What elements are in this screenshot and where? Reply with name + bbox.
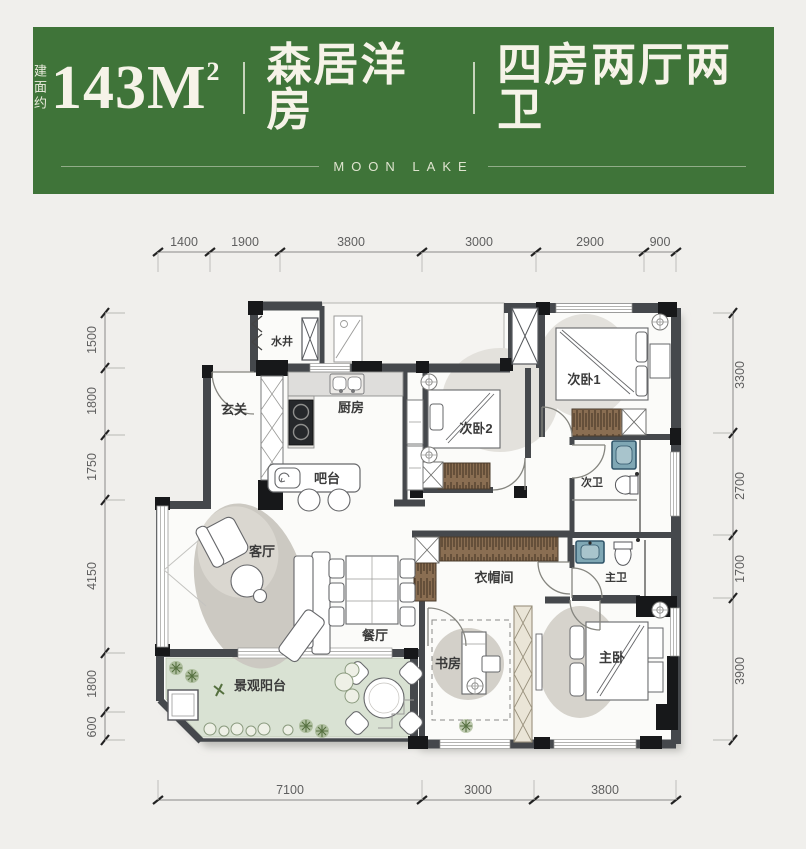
room-label-masterbed: 主卧: [599, 650, 625, 665]
room-label-balcony: 景观阳台: [234, 678, 286, 693]
room-label-foyer: 玄关: [221, 402, 247, 417]
room-label-cloakroom: 衣帽间: [474, 570, 513, 585]
bath2-fixtures: [612, 441, 639, 494]
bath2-window: [671, 452, 680, 516]
dim-top-1: 1900: [231, 235, 259, 249]
dim-right-3: 3900: [733, 657, 747, 685]
dim-top-3: 3000: [465, 235, 493, 249]
dim-left-1: 1800: [85, 387, 99, 415]
room-label-bedroom2: 次卧2: [459, 421, 492, 436]
dim-left-3: 4150: [85, 562, 99, 590]
bedroom1-plant-icon: [652, 314, 668, 330]
room-label-kitchen: 厨房: [338, 400, 364, 415]
room-label-bar: 吧台: [314, 471, 340, 486]
bedroom1-window: [556, 304, 632, 313]
title-divider: [243, 62, 245, 114]
dim-bottom-2: 3800: [591, 783, 619, 797]
masterbed-plant-icon: [652, 602, 668, 618]
dim-top-4: 2900: [576, 235, 604, 249]
brand-line-left: [61, 166, 319, 167]
dim-right-1: 2700: [733, 472, 747, 500]
dim-left-0: 1500: [85, 326, 99, 354]
room-label-dining: 餐厅: [361, 628, 388, 643]
product-name: 森居洋房: [267, 43, 452, 133]
brand-text: MOON LAKE: [333, 159, 473, 174]
dim-left-4: 1800: [85, 670, 99, 698]
room-label-bedroom1: 次卧1: [567, 372, 600, 387]
dim-left-2: 1750: [85, 453, 99, 481]
area-value: 143M2: [51, 57, 221, 119]
study-plant-icon: [467, 678, 483, 694]
bedroom2-plant-icon: [421, 374, 437, 390]
area-superscript: 2: [207, 57, 221, 86]
layout-name: 四房两厅两卫: [497, 43, 774, 133]
brand-line-right: [488, 166, 746, 167]
title-row: 建面约 143M2 森居洋房 四房两厅两卫: [33, 43, 774, 133]
dim-top-0: 1400: [170, 235, 198, 249]
dim-top-5: 900: [650, 235, 671, 249]
floor-plan: 水井 玄关 厨房 次卧2 次卧1 吧台 次卫 客厅 衣帽间 主卫 餐厅 书房 主…: [0, 194, 806, 844]
kitchen-window: [310, 364, 350, 373]
room-label-shaft: 水井: [271, 334, 293, 348]
room-label-living: 客厅: [249, 544, 275, 559]
dim-right-0: 3300: [733, 361, 747, 389]
bar-stool: [328, 489, 350, 511]
bar-stool: [298, 489, 320, 511]
room-label-masterbath: 主卫: [605, 570, 627, 584]
dim-right-2: 1700: [733, 555, 747, 583]
dim-bottom-0: 7100: [276, 783, 304, 797]
study-window: [440, 740, 510, 749]
bedroom2-plant-icon: [421, 447, 437, 463]
room-label-study: 书房: [435, 656, 461, 671]
brand-row: MOON LAKE: [61, 159, 746, 174]
title-divider: [473, 62, 475, 114]
room-label-bath2: 次卫: [581, 475, 603, 489]
area-number: 143M: [51, 54, 207, 122]
dim-bottom-1: 3000: [464, 783, 492, 797]
dim-left-5: 600: [85, 717, 99, 738]
masterbed-window-right: [671, 608, 680, 656]
dim-top-2: 3800: [337, 235, 365, 249]
area-prefix-label: 建面约: [33, 64, 46, 112]
cloakroom-xbox: [415, 537, 439, 563]
dining-furniture: [329, 556, 415, 626]
title-banner: 建面约 143M2 森居洋房 四房两厅两卫 MOON LAKE: [33, 27, 774, 194]
bedroom1-closet-xbox: [622, 409, 646, 435]
floor-plan-svg: 水井 玄关 厨房 次卧2 次卧1 吧台 次卫 客厅 衣帽间 主卫 餐厅 书房 主…: [0, 194, 806, 844]
masterbed-window-bottom: [554, 740, 636, 749]
